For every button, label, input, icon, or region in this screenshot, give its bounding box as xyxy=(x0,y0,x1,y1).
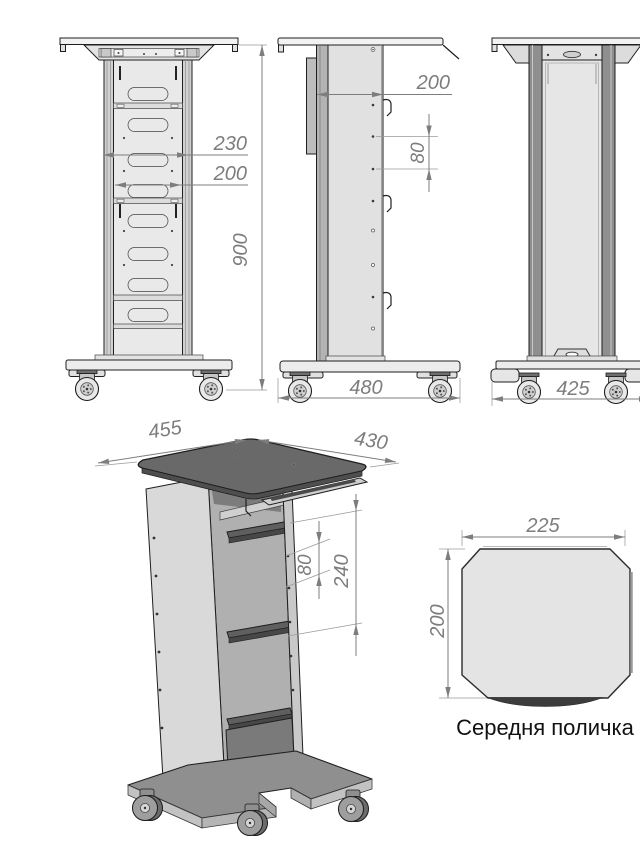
dim-front-column-width-inner: 200 xyxy=(213,163,247,185)
dim-side-base-length: 480 xyxy=(349,377,382,399)
dim-shelf-width: 225 xyxy=(525,515,560,537)
dim-side-hole-pitch: 80 xyxy=(408,142,429,164)
dim-shelf-depth: 200 xyxy=(427,604,449,638)
dim-iso-tabletop-width: 430 xyxy=(353,428,389,455)
side-view: 200 80 480 xyxy=(278,38,460,403)
isometric-view: 455 430 80 240 xyxy=(95,416,399,835)
back-view: 425 xyxy=(491,38,640,406)
dim-front-column-width-outer: 230 xyxy=(213,133,247,155)
shelf-front-edge-band xyxy=(487,698,603,707)
front-view: 230 200 900 xyxy=(60,38,267,401)
middle-shelf-detail: 225 200 Середня поличка xyxy=(427,515,635,740)
technical-drawing: 230 200 900 xyxy=(40,16,640,852)
dim-front-overall-height: 900 xyxy=(230,233,252,266)
dim-back-base-width: 425 xyxy=(556,378,590,400)
dim-iso-shelf-hole-pitch: 80 xyxy=(295,554,316,576)
dim-iso-shelf-spacing: 240 xyxy=(331,554,353,588)
drawing-canvas: 230 200 900 xyxy=(40,16,640,852)
shelf-detail-caption: Середня поличка xyxy=(456,715,634,740)
dim-iso-tabletop-depth: 455 xyxy=(147,416,184,443)
dim-side-column-depth: 200 xyxy=(416,72,450,94)
shelf-outline xyxy=(462,549,630,698)
